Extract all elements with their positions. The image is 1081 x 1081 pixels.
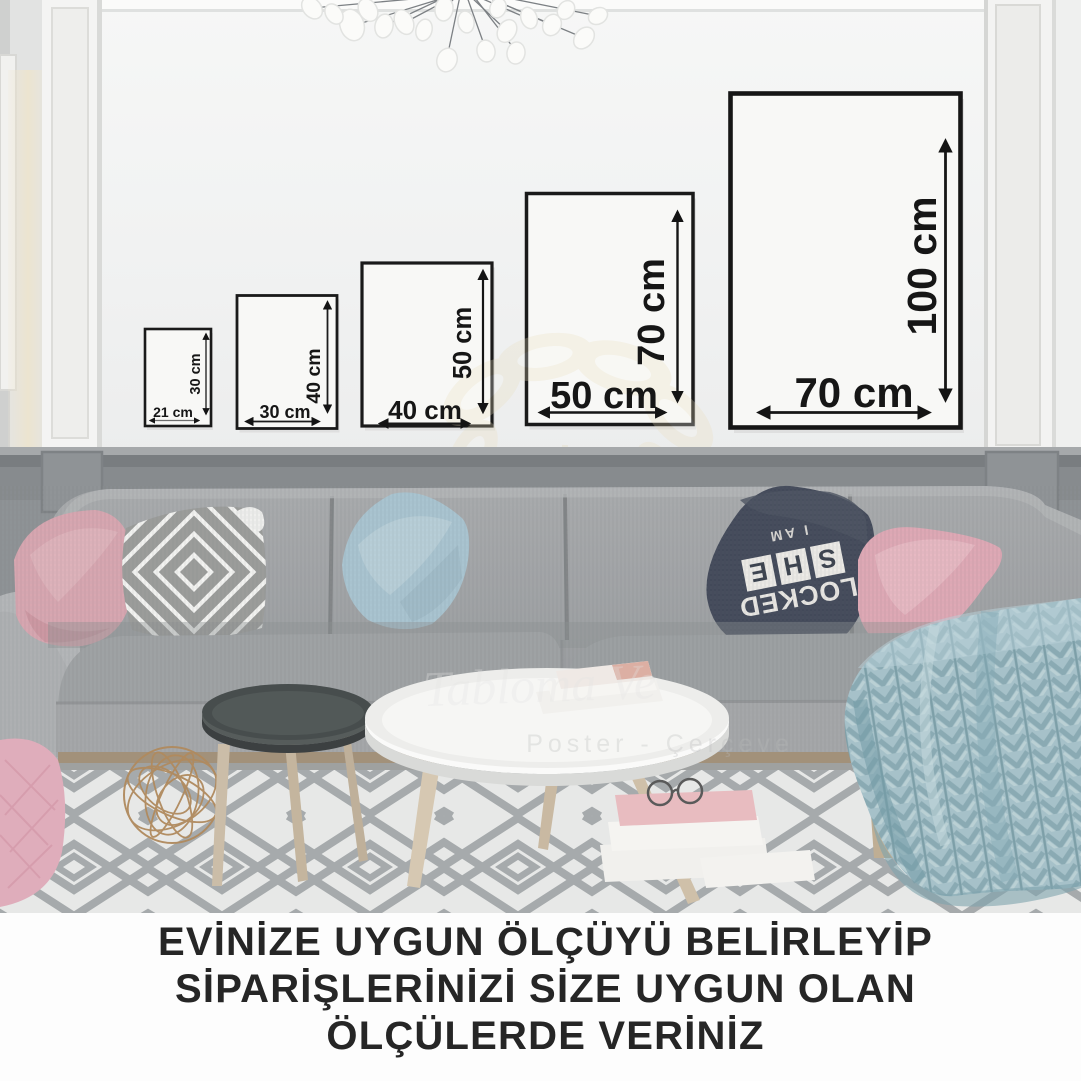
svg-text:40 cm: 40 cm bbox=[303, 348, 325, 403]
svg-text:50 cm: 50 cm bbox=[449, 307, 477, 379]
svg-text:100 cm: 100 cm bbox=[899, 196, 945, 335]
svg-text:70 cm: 70 cm bbox=[631, 258, 673, 366]
svg-text:Poster - Çerçeve: Poster - Çerçeve bbox=[526, 730, 794, 758]
svg-text:Tabloma Ve: Tabloma Ve bbox=[422, 653, 657, 717]
svg-text:30 cm: 30 cm bbox=[259, 402, 310, 422]
svg-text:30 cm: 30 cm bbox=[188, 353, 204, 394]
svg-text:70 cm: 70 cm bbox=[794, 369, 913, 416]
svg-text:50 cm: 50 cm bbox=[550, 375, 658, 417]
svg-text:40 cm: 40 cm bbox=[388, 395, 462, 425]
svg-text:21 cm: 21 cm bbox=[153, 404, 193, 420]
